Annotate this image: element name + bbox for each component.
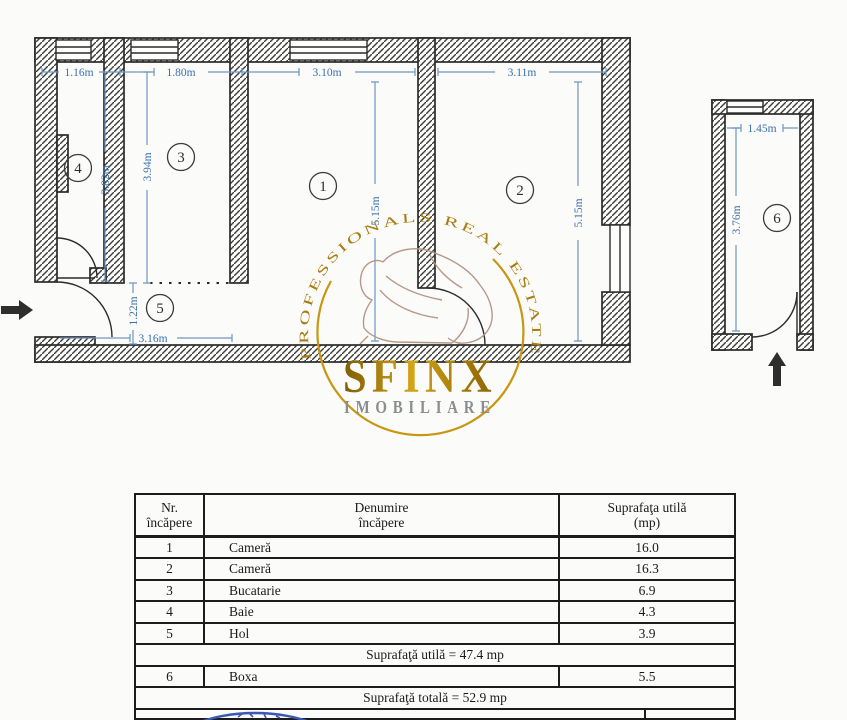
cell-nr: 5 bbox=[136, 624, 205, 643]
cell-name: Cameră bbox=[205, 559, 560, 579]
total-text: Suprafaţă totală = 52.9 mp bbox=[136, 688, 734, 708]
table-row: 1 Cameră 16.0 bbox=[136, 538, 734, 559]
logo-brand-text: SFINX bbox=[343, 350, 497, 403]
table-row: 2 Cameră 16.3 bbox=[136, 559, 734, 581]
cell-name: Cameră bbox=[205, 538, 560, 557]
header-suprafata: Suprafaţa utilă (mp) bbox=[560, 495, 734, 535]
subtotal-text: Suprafaţă utilă = 47.4 mp bbox=[136, 645, 734, 665]
cell-nr: 6 bbox=[136, 667, 205, 686]
total-row: Suprafaţă totală = 52.9 mp bbox=[136, 688, 734, 710]
room-number-2: 2 bbox=[516, 183, 524, 199]
cell-nr: 4 bbox=[136, 602, 205, 622]
header-denumire-line1: Denumire bbox=[355, 500, 409, 515]
floor-plan: 1.16m 1.80m 3.10m 3.11m 3.82m 3.94m 5.15… bbox=[0, 0, 847, 490]
cell-area: 16.3 bbox=[560, 559, 734, 579]
table-row: 5 Hol 3.9 bbox=[136, 624, 734, 645]
boxa-door bbox=[752, 292, 797, 337]
cell-nr: 2 bbox=[136, 559, 205, 579]
entrance-arrow-icon bbox=[1, 300, 33, 320]
logo-subtitle-text: IMOBILIARE bbox=[344, 397, 496, 417]
dim-5-15-room2: 5.15m bbox=[573, 198, 585, 227]
table-header-row: Nr. încăpere Denumire încăpere Suprafaţa… bbox=[136, 495, 734, 538]
cell-area: 16.0 bbox=[560, 538, 734, 557]
dim-3-11: 3.11m bbox=[508, 67, 537, 79]
room-number-6: 6 bbox=[773, 211, 781, 227]
cell-nr: 3 bbox=[136, 581, 205, 600]
header-suprafata-line1: Suprafaţa utilă bbox=[607, 500, 686, 515]
cell-area: 4.3 bbox=[560, 602, 734, 622]
header-nr-line2: încăpere bbox=[147, 515, 193, 530]
partial-cell bbox=[646, 710, 734, 720]
header-denumire-line2: încăpere bbox=[359, 515, 405, 530]
cell-nr: 1 bbox=[136, 538, 205, 557]
header-suprafata-line2: (mp) bbox=[634, 515, 660, 530]
boxa-building-walls bbox=[712, 100, 813, 350]
partial-bottom-row bbox=[136, 710, 734, 720]
dim-3-82: 3.82m bbox=[100, 165, 112, 194]
cell-area: 3.9 bbox=[560, 624, 734, 643]
dim-1-16: 1.16m bbox=[64, 67, 93, 79]
header-nr-incapere: Nr. încăpere bbox=[136, 495, 205, 535]
table-row: 4 Baie 4.3 bbox=[136, 602, 734, 624]
room-number-4: 4 bbox=[74, 161, 82, 177]
dim-3-94: 3.94m bbox=[142, 152, 154, 181]
dim-3-16: 3.16m bbox=[138, 333, 167, 345]
room-areas-table: Nr. încăpere Denumire încăpere Suprafaţa… bbox=[134, 493, 736, 720]
dim-1-45: 1.45m bbox=[747, 123, 776, 135]
dim-1-22: 1.22m bbox=[128, 296, 140, 325]
cell-area: 6.9 bbox=[560, 581, 734, 600]
door-arc-room2 bbox=[428, 288, 485, 345]
boxa-entrance-arrow-icon bbox=[768, 352, 786, 386]
window-room3 bbox=[131, 40, 178, 60]
partial-cell bbox=[136, 710, 646, 720]
scanned-floorplan-page: 1.16m 1.80m 3.10m 3.11m 3.82m 3.94m 5.15… bbox=[0, 0, 847, 720]
cell-name: Bucatarie bbox=[205, 581, 560, 600]
subtotal-row: Suprafaţă utilă = 47.4 mp bbox=[136, 645, 734, 667]
door-arc-entrance bbox=[57, 282, 112, 337]
room-number-5: 5 bbox=[156, 301, 164, 317]
window-room1 bbox=[290, 40, 367, 60]
room-number-1: 1 bbox=[319, 179, 327, 195]
dim-3-76: 3.76m bbox=[731, 205, 743, 234]
header-nr-line1: Nr. bbox=[161, 500, 178, 515]
dim-3-10: 3.10m bbox=[312, 67, 341, 79]
dim-1-80: 1.80m bbox=[166, 67, 195, 79]
cell-name: Hol bbox=[205, 624, 560, 643]
door-arc-boxa bbox=[752, 292, 797, 337]
room-number-3: 3 bbox=[177, 150, 185, 166]
cell-area: 5.5 bbox=[560, 667, 734, 686]
boxa-window bbox=[727, 101, 763, 113]
table-row: 6 Boxa 5.5 bbox=[136, 667, 734, 688]
window-room4 bbox=[56, 40, 91, 60]
cell-name: Baie bbox=[205, 602, 560, 622]
header-denumire: Denumire încăpere bbox=[205, 495, 560, 535]
cell-name: Boxa bbox=[205, 667, 560, 686]
table-row: 3 Bucatarie 6.9 bbox=[136, 581, 734, 602]
